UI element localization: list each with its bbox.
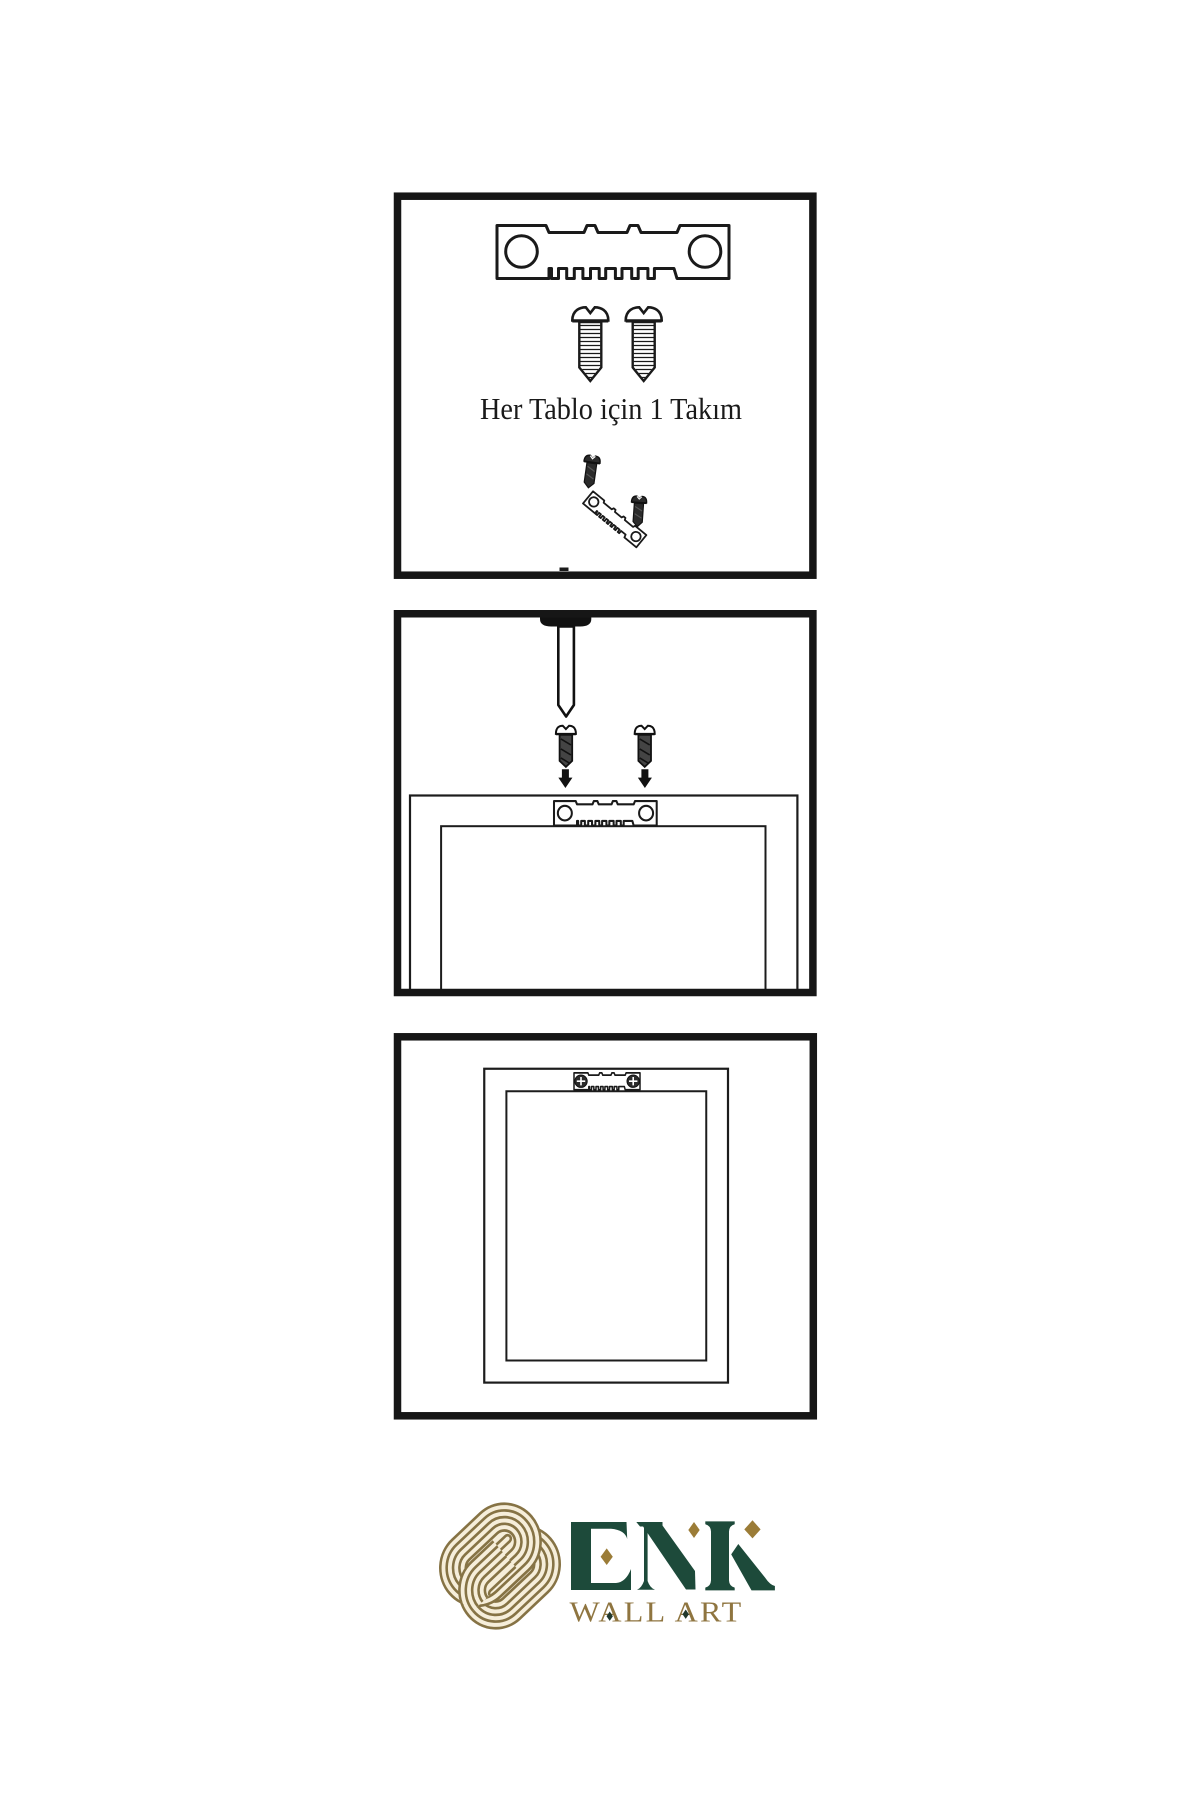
svg-text:WALL ART: WALL ART — [570, 1597, 744, 1629]
svg-text:Her Tablo için 1 Takım: Her Tablo için 1 Takım — [480, 391, 742, 426]
